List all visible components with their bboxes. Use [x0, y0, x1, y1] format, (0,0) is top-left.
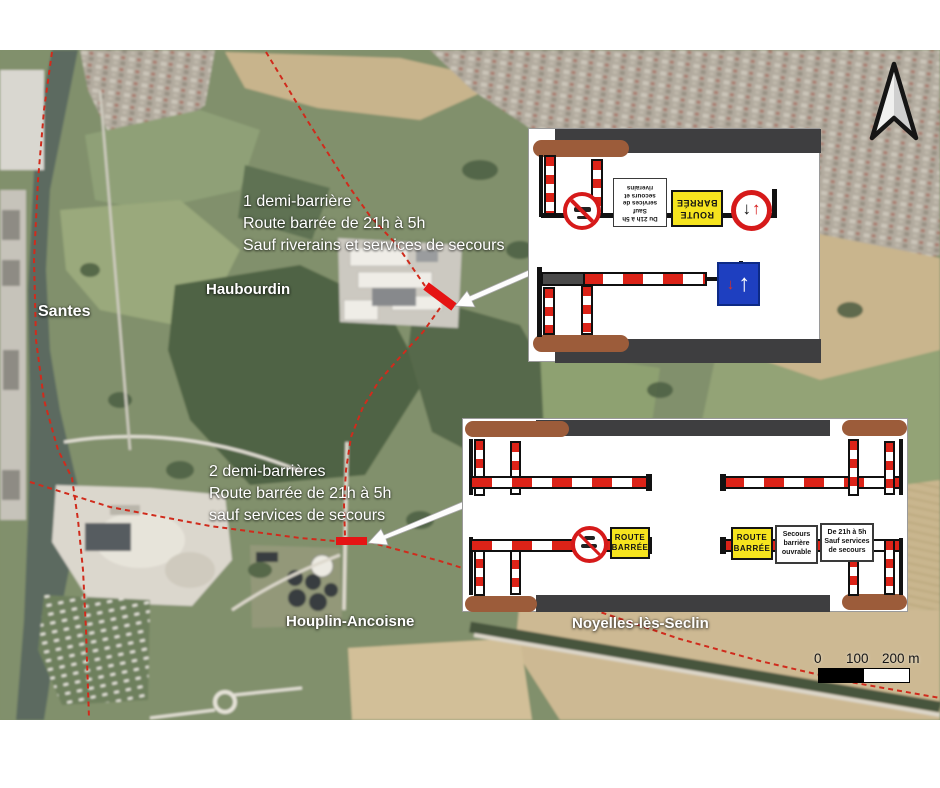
sign-line: barrière: [783, 540, 809, 549]
arm-tip: [646, 474, 652, 491]
prohibition-slash: [568, 197, 596, 225]
road-edge: [536, 420, 830, 436]
annotation-barrier-1: 1 demi-barrière Route barrée de 21h à 5h…: [243, 191, 504, 257]
sign-line: BARRÉE: [612, 543, 649, 553]
barrier-post: [848, 439, 859, 496]
priority-over-oncoming-sign-icon: ↓ ↑: [717, 262, 760, 306]
scale-tick-0: 0: [814, 651, 822, 666]
annotation-1-line-2: Route barrée de 21h à 5h: [243, 213, 504, 235]
sign-line: De 21h à 5h: [828, 529, 867, 538]
barrier-arm-base: [541, 272, 585, 286]
time-restriction-sign: De 21h à 5h Sauf services de secours: [820, 523, 874, 562]
sign-line: Sauf: [633, 206, 647, 214]
scale-tick-200: 200 m: [882, 651, 920, 666]
barrier-frame: [539, 155, 543, 217]
sign-line: Du 21h à 5h: [622, 214, 657, 222]
verge: [465, 421, 569, 437]
white-up-arrow-icon: ↑: [738, 272, 750, 296]
sign-line: Secours: [783, 531, 811, 540]
scale-bar: 0 100 200 m: [810, 651, 920, 683]
sign-line: ROUTE: [680, 209, 714, 221]
barrier-post: [544, 155, 556, 215]
sign-line: riverains: [627, 183, 653, 191]
barrier-post: [543, 287, 555, 335]
north-arrow-icon: [866, 60, 922, 148]
verge: [465, 596, 537, 612]
red-down-arrow-icon: ↓: [727, 277, 735, 292]
route-barree-sign: ROUTE BARRÉE: [671, 190, 723, 227]
barrier-post: [884, 539, 895, 595]
verge: [533, 335, 629, 352]
annotation-2-line-3: sauf services de secours: [209, 505, 391, 527]
no-motor-vehicles-sign-icon: [571, 526, 608, 563]
no-motor-vehicles-sign-icon: [563, 192, 601, 230]
secours-barriere-sign: Secours barrière ouvrable: [775, 525, 818, 564]
prohibition-slash: [576, 531, 603, 558]
city-label-haubourdin: Haubourdin: [206, 281, 290, 298]
route-barree-sign: ROUTE BARRÉE: [610, 527, 650, 559]
barrier-frame: [899, 439, 903, 495]
black-up-arrow-icon: ↑: [743, 202, 752, 219]
half-barrier-arm: [722, 476, 902, 489]
arm-tip: [720, 474, 726, 491]
annotation-barrier-2: 2 demi-barrières Route barrée de 21h à 5…: [209, 461, 391, 527]
annotation-2-line-2: Route barrée de 21h à 5h: [209, 483, 391, 505]
inset-diagram-single-barrier: Du 21h à 5h Sauf services de secours et …: [528, 128, 820, 362]
barrier-frame: [772, 189, 777, 218]
scale-bar-graphic: [818, 668, 910, 683]
sign-line: secours et: [624, 191, 656, 199]
scale-bar-ticks: 0 100 200 m: [810, 651, 920, 668]
verge: [842, 420, 907, 436]
sign-line: de secours: [829, 547, 866, 556]
barrier-frame: [899, 538, 903, 595]
sign-line: Sauf services: [824, 538, 869, 547]
verge: [842, 594, 907, 610]
arm-tip: [720, 537, 726, 554]
red-down-arrow-icon: ↓: [752, 202, 761, 219]
sign-line: ouvrable: [782, 549, 811, 558]
inset-diagram-double-barrier: ROUTE BARRÉE ROUTE BARRÉE Secours barriè…: [462, 418, 908, 612]
scale-tick-100: 100: [846, 651, 869, 666]
city-label-noyelles-les-seclin: Noyelles-lès-Seclin: [572, 615, 709, 632]
map-document: Santes Haubourdin Houplin-Ancoisne Noyel…: [0, 0, 940, 788]
sign-line: ROUTE: [615, 533, 646, 543]
annotation-1-line-3: Sauf riverains et services de secours: [243, 235, 504, 257]
annotation-2-line-1: 2 demi-barrières: [209, 461, 391, 483]
annotation-1-line-1: 1 demi-barrière: [243, 191, 504, 213]
route-barree-sign: ROUTE BARRÉE: [731, 527, 773, 560]
priority-oncoming-sign-icon: ↓ ↑: [731, 190, 772, 231]
city-label-santes: Santes: [38, 303, 90, 321]
sign-line: ROUTE: [737, 533, 768, 543]
road-edge: [536, 595, 830, 612]
time-restriction-sign: Du 21h à 5h Sauf services de secours et …: [613, 178, 667, 227]
barrier-post: [581, 285, 593, 335]
barrier-post: [884, 441, 895, 495]
city-label-houplin-ancoisne: Houplin-Ancoisne: [286, 613, 414, 630]
half-barrier-arm: [470, 476, 650, 489]
sign-line: BARRÉE: [677, 197, 718, 209]
sign-line: services de: [623, 199, 657, 207]
scale-bar-black-half: [819, 669, 864, 682]
sign-line: BARRÉE: [734, 544, 771, 554]
